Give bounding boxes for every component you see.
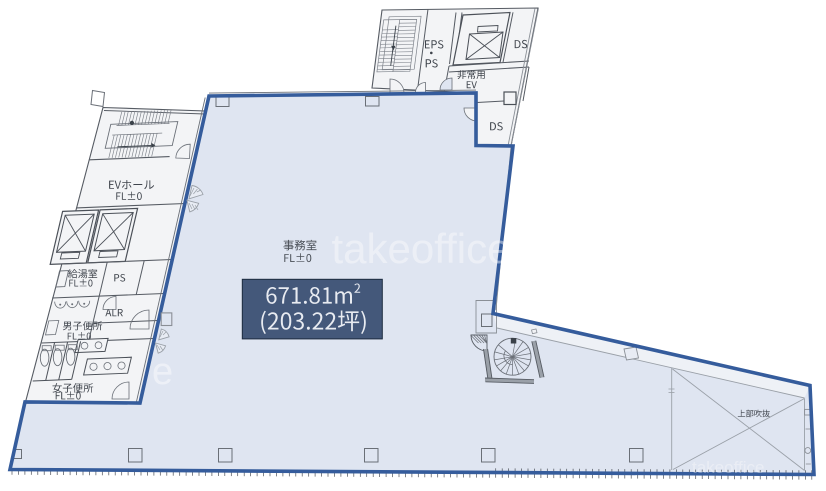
svg-text:e: e — [152, 351, 173, 393]
svg-text:takeoffice: takeoffice — [692, 458, 764, 477]
svg-text:takeoffice: takeoffice — [331, 225, 510, 272]
